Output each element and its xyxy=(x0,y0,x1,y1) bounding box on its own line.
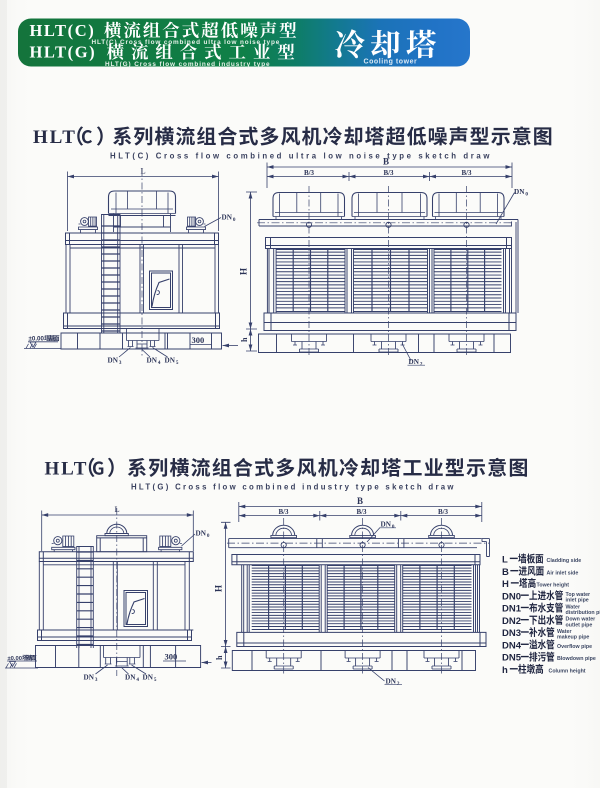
svg-text:h: h xyxy=(502,665,508,676)
svg-text:B: B xyxy=(357,496,363,506)
svg-text:DN3: DN3 xyxy=(502,628,521,639)
svg-text:makeup pipe: makeup pipe xyxy=(557,635,589,641)
svg-text:DN: DN xyxy=(386,678,397,686)
svg-text:HLT: HLT xyxy=(45,459,89,480)
svg-text:4: 4 xyxy=(136,677,139,683)
svg-text:h: h xyxy=(240,337,249,342)
svg-text:DN5: DN5 xyxy=(502,653,522,664)
svg-text:DN: DN xyxy=(381,521,392,529)
svg-text:HLT(C) Cross flow combined ult: HLT(C) Cross flow combined ultra low noi… xyxy=(110,151,492,160)
svg-text:outlet pipe: outlet pipe xyxy=(566,622,593,628)
svg-text:4: 4 xyxy=(158,360,161,366)
svg-text:0: 0 xyxy=(233,217,236,223)
svg-text:2: 2 xyxy=(397,681,400,687)
svg-text:L: L xyxy=(141,166,146,176)
svg-text:2: 2 xyxy=(420,362,423,368)
svg-text:Cladding side: Cladding side xyxy=(547,558,582,564)
svg-text:HLT: HLT xyxy=(33,127,77,148)
svg-text:B/3: B/3 xyxy=(461,169,472,177)
svg-text:Blowdown pipe: Blowdown pipe xyxy=(557,656,596,662)
svg-text:DN: DN xyxy=(147,357,158,365)
svg-text:inlet pipe: inlet pipe xyxy=(566,598,589,604)
svg-text:5: 5 xyxy=(176,360,179,366)
svg-text:300: 300 xyxy=(165,652,178,662)
svg-text:Air inlet side: Air inlet side xyxy=(547,570,579,576)
svg-text:B/3: B/3 xyxy=(304,169,315,177)
svg-text:DN: DN xyxy=(514,188,525,196)
svg-text:DN: DN xyxy=(125,674,136,682)
svg-text:H: H xyxy=(502,579,509,590)
svg-text:0: 0 xyxy=(207,533,210,539)
svg-text:B: B xyxy=(383,157,389,167)
svg-text:DN4: DN4 xyxy=(502,640,522,651)
svg-text:H: H xyxy=(239,268,249,275)
svg-text:DN0: DN0 xyxy=(502,591,521,602)
svg-text:DN1: DN1 xyxy=(502,604,522,615)
svg-text:DN: DN xyxy=(165,357,176,365)
svg-text:Overflow pipe: Overflow pipe xyxy=(557,644,592,650)
svg-text:B/3: B/3 xyxy=(383,169,394,177)
svg-text:0: 0 xyxy=(392,524,395,530)
svg-text:DN: DN xyxy=(84,674,95,682)
svg-text:B/3: B/3 xyxy=(356,508,367,516)
svg-text:H: H xyxy=(214,585,224,592)
svg-text:DN2: DN2 xyxy=(502,616,521,627)
svg-text:5: 5 xyxy=(154,677,157,683)
svg-text:300: 300 xyxy=(192,335,205,345)
svg-text:DN: DN xyxy=(222,214,233,222)
svg-text:0: 0 xyxy=(525,192,528,198)
svg-text:HLT(G) Cross flow combined ind: HLT(G) Cross flow combined industry type… xyxy=(131,483,456,492)
svg-text:B/3: B/3 xyxy=(278,508,289,516)
svg-text:HLT(C): HLT(C) xyxy=(30,21,96,40)
svg-text:3: 3 xyxy=(95,677,98,683)
svg-text:DN: DN xyxy=(108,357,119,365)
svg-text:B: B xyxy=(502,567,509,578)
svg-text:HLT(G) Cross flow combined ind: HLT(G) Cross flow combined industry type xyxy=(105,61,270,68)
svg-text:Tower height: Tower height xyxy=(537,583,570,589)
svg-text:3: 3 xyxy=(119,360,122,366)
svg-text:B/3: B/3 xyxy=(438,508,449,516)
svg-text:L: L xyxy=(115,504,120,514)
svg-text:h: h xyxy=(215,655,224,660)
svg-text:HLT(G): HLT(G) xyxy=(30,43,97,62)
svg-text:DN: DN xyxy=(196,530,207,538)
svg-text:Cooling tower: Cooling tower xyxy=(364,59,418,66)
svg-text:Column height: Column height xyxy=(549,668,586,674)
svg-text:DN: DN xyxy=(143,674,154,682)
svg-text:distribution pipe: distribution pipe xyxy=(566,610,600,616)
svg-text:L: L xyxy=(502,555,508,566)
